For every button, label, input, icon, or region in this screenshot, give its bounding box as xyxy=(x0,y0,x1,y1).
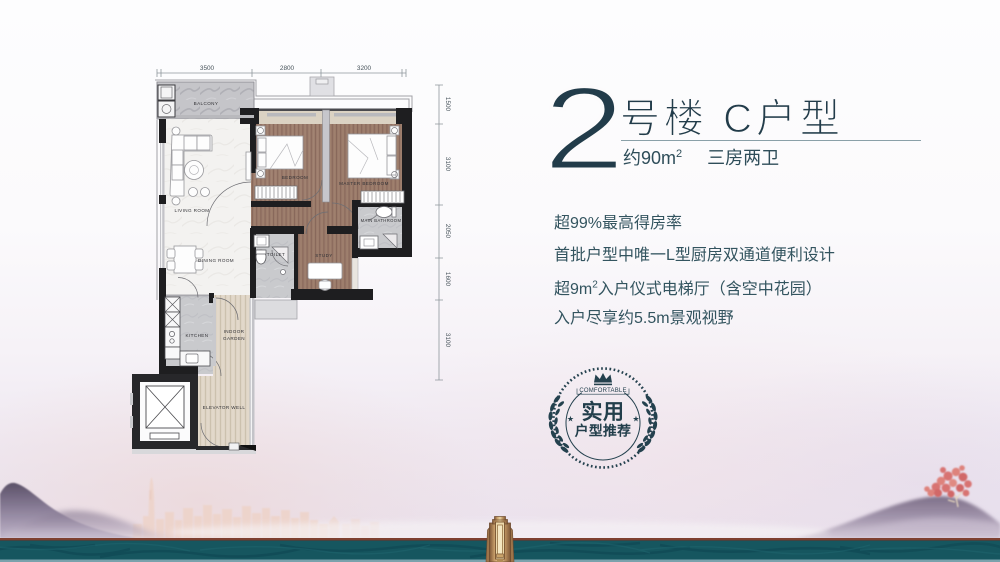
svg-text:ELEVATOR WELL: ELEVATOR WELL xyxy=(203,405,246,410)
svg-text:3100: 3100 xyxy=(444,333,451,348)
svg-text:2050: 2050 xyxy=(444,224,451,239)
svg-text:BALCONY: BALCONY xyxy=(194,101,219,106)
svg-text:DINING ROOM: DINING ROOM xyxy=(198,258,234,263)
svg-text:COMFORTABLE: COMFORTABLE xyxy=(579,388,626,394)
svg-text:1500: 1500 xyxy=(444,97,451,112)
svg-text:★: ★ xyxy=(567,415,574,424)
svg-text:INDOOR: INDOOR xyxy=(224,329,245,334)
svg-text:实用: 实用 xyxy=(582,400,625,424)
svg-text:KITCHEN: KITCHEN xyxy=(186,333,209,338)
svg-text:TOILET: TOILET xyxy=(267,252,285,257)
svg-text:3500: 3500 xyxy=(200,65,215,72)
svg-text:1600: 1600 xyxy=(444,272,451,287)
svg-text:STUDY: STUDY xyxy=(315,253,333,258)
svg-text:3200: 3200 xyxy=(357,65,372,72)
svg-text:GARDEN: GARDEN xyxy=(223,336,245,341)
svg-text:2800: 2800 xyxy=(280,65,295,72)
svg-text:3100: 3100 xyxy=(444,157,451,172)
svg-text:★: ★ xyxy=(632,415,639,424)
svg-text:MAIN BATHROOM: MAIN BATHROOM xyxy=(361,218,402,223)
svg-text:户型推荐: 户型推荐 xyxy=(575,423,631,439)
svg-text:LIVING ROOM: LIVING ROOM xyxy=(174,208,209,213)
svg-text:MASTER BEDROOM: MASTER BEDROOM xyxy=(339,181,389,186)
svg-text:BEDROOM: BEDROOM xyxy=(282,175,309,180)
